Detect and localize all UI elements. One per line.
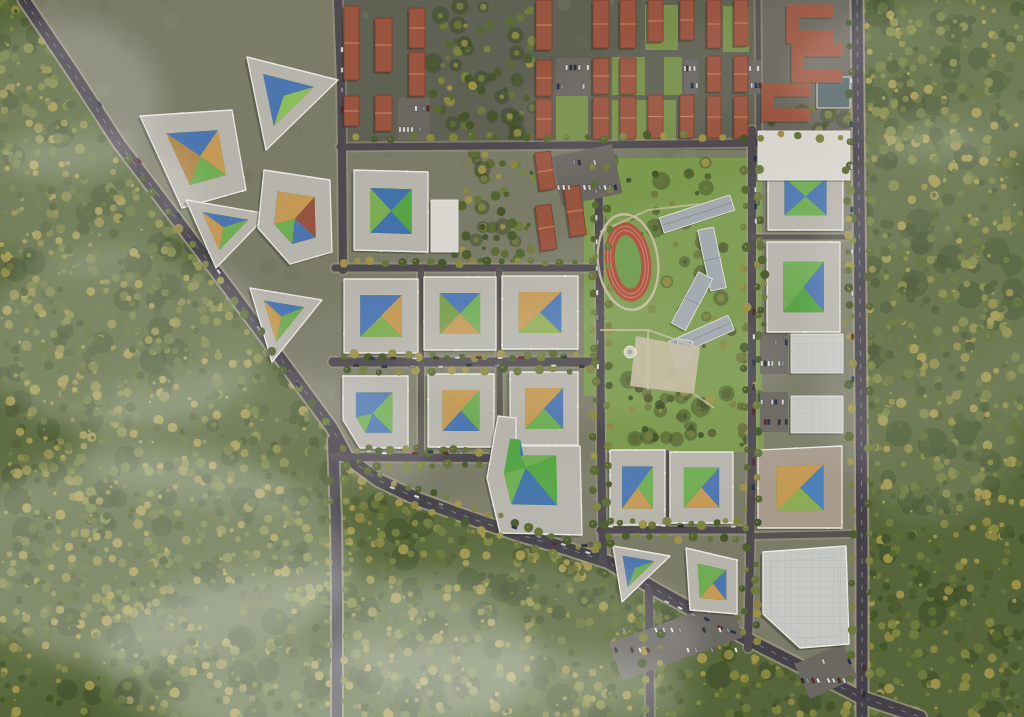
townhouse-building [534,0,552,52]
masterplan-svg [0,0,1024,717]
townhouse-building [407,8,425,50]
car [341,107,343,112]
car [551,543,556,546]
car [608,525,613,527]
car [443,452,448,454]
block-nw-e [352,170,429,254]
car [578,65,580,70]
townhouse-building [618,0,636,50]
car [753,309,755,314]
townhouse-building [373,95,392,133]
car [419,127,422,132]
townhouse-building [342,6,359,82]
townhouse-building [342,96,359,128]
car [678,525,683,527]
car [570,65,572,70]
car [427,106,430,111]
car [341,47,343,52]
car [595,189,597,194]
car [403,127,405,132]
car [595,215,597,220]
car [423,106,426,111]
car [458,452,463,454]
townhouse-building [407,52,425,98]
car [341,67,343,72]
car [761,399,763,404]
car [411,127,414,132]
car [661,524,666,526]
car [731,525,736,527]
car [574,65,577,70]
car [863,692,865,697]
service-building [429,200,458,254]
car [863,665,865,670]
townhouse-building [646,0,663,44]
car [407,127,410,132]
townhouse-building [373,18,392,74]
car [582,544,587,547]
masterplan-aerial-render [0,0,1024,717]
townhouse-building [591,0,609,50]
car [752,485,754,490]
car [415,106,418,111]
car [341,87,343,92]
car [771,399,774,404]
car [399,127,402,132]
car [754,156,756,161]
block-s-p [684,548,738,616]
mall-north-lane [755,534,850,536]
car [565,65,568,70]
